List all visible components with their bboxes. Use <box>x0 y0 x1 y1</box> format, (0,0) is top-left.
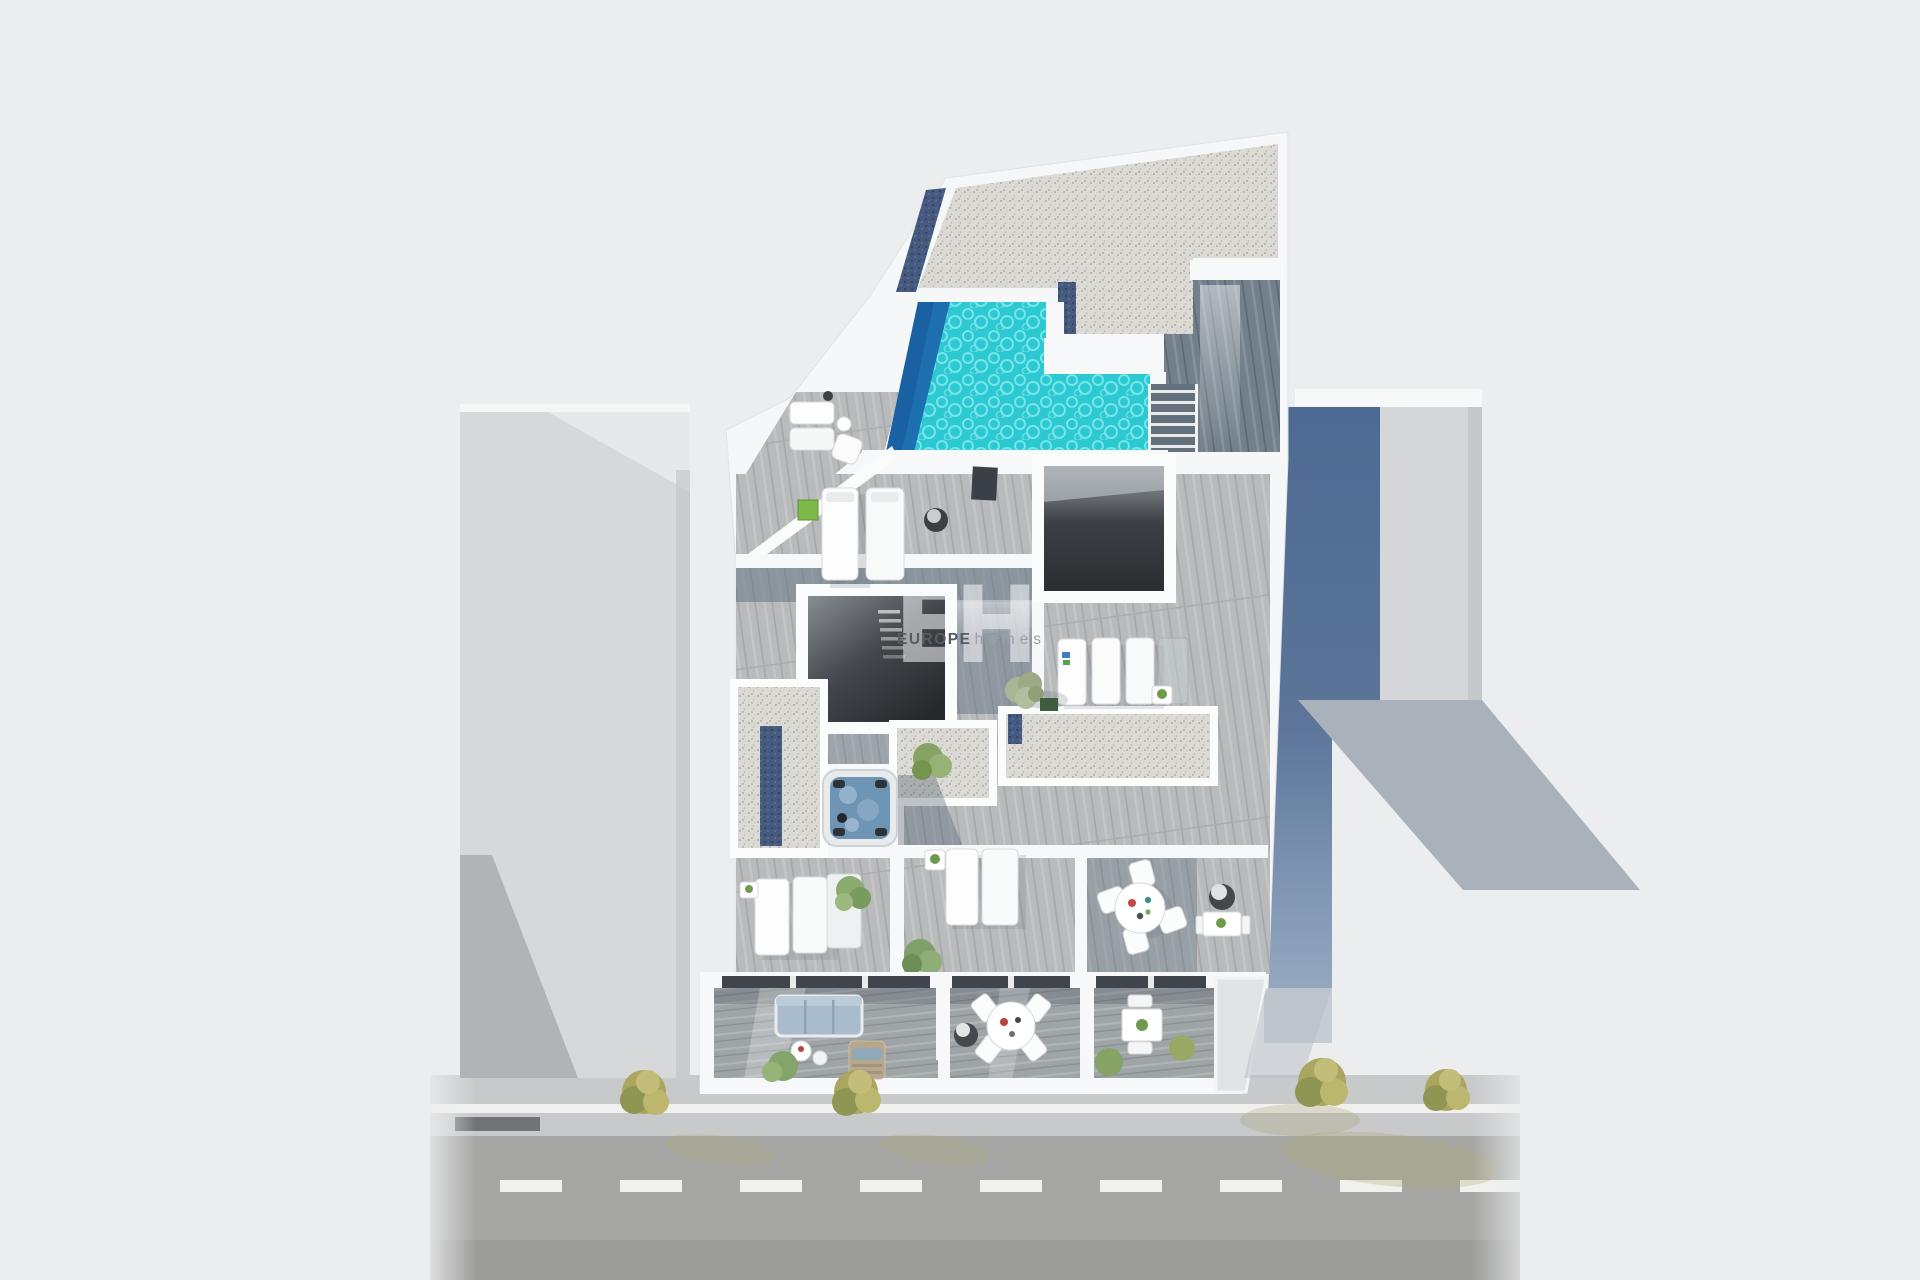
plant <box>835 893 853 911</box>
chair-cushion <box>852 1048 882 1060</box>
plant <box>930 854 940 864</box>
towel <box>1063 660 1070 665</box>
plant <box>745 885 753 893</box>
stairs-base <box>1150 384 1196 452</box>
street-zone <box>430 1075 1520 1280</box>
planter <box>823 391 833 401</box>
right-building-ground-shadow <box>1298 700 1640 890</box>
stairs-east <box>1148 384 1198 452</box>
sun-lounger <box>1126 638 1154 704</box>
garden-mat <box>1040 698 1058 711</box>
towel <box>1062 652 1070 658</box>
gravel-terrace-west <box>730 679 828 858</box>
round-table <box>987 1002 1035 1050</box>
shrub <box>762 1062 782 1082</box>
dining-table <box>1115 883 1165 933</box>
sun-lounger <box>755 879 789 955</box>
glass-door-opening <box>722 976 930 988</box>
balcony-divider <box>936 988 950 1060</box>
right-roof-parapet <box>1295 389 1482 407</box>
sun-lounger <box>793 877 827 953</box>
plant <box>1157 689 1167 699</box>
solar-strip-icon <box>1008 714 1022 744</box>
center-lounger-row <box>1058 638 1188 709</box>
stairwell-void-upper <box>1032 454 1176 603</box>
left-building-edge-shade <box>676 470 690 1078</box>
right-building-edge-shade <box>1468 407 1482 700</box>
dark-curb <box>455 1117 540 1131</box>
planter-plant <box>927 509 941 523</box>
solar-strip-icon <box>760 726 782 846</box>
neighbor-building-left <box>460 404 690 1078</box>
chair <box>1128 995 1152 1007</box>
outdoor-panel <box>971 466 998 500</box>
plant <box>1136 1019 1148 1031</box>
floorplan-render <box>0 0 1920 1280</box>
balcony-row <box>700 972 1266 1094</box>
render-canvas: EH EUROPEhomes <box>0 0 1920 1280</box>
sun-lounger <box>946 849 978 925</box>
chair <box>1128 1042 1152 1054</box>
pool-walkway-arm <box>1044 338 1164 374</box>
walkway-light-streak <box>1200 285 1240 450</box>
void-dark-opening <box>808 596 945 722</box>
sun-lounger <box>982 849 1018 925</box>
gravel-terrace-mid-right <box>998 706 1218 786</box>
plant <box>1216 918 1226 928</box>
chair <box>1242 916 1250 934</box>
sun-lounger <box>790 428 834 450</box>
balcony-divider <box>1080 988 1094 1054</box>
sidewalk-edge-line <box>430 1104 1520 1113</box>
main-building <box>700 132 1332 1094</box>
dining-terrace-wall <box>1075 848 1087 984</box>
sun-lounger <box>790 402 834 424</box>
right-building-body <box>1380 407 1482 700</box>
terrace-parapet <box>1190 260 1284 280</box>
pool-divider-wall <box>1046 302 1064 344</box>
deck-streak <box>946 600 1042 640</box>
shrub <box>1095 1048 1123 1076</box>
left-terrace-furniture <box>740 874 871 960</box>
tree-shadow <box>1240 1104 1360 1136</box>
side-table <box>837 417 851 431</box>
jacuzzi-seat <box>837 813 847 823</box>
road-lower-shade <box>430 1240 1520 1280</box>
green-planter <box>798 500 818 520</box>
shrub <box>902 954 922 974</box>
balcony-left-wall <box>700 978 714 1092</box>
neighbor-building-right <box>1264 389 1640 1043</box>
sun-lounger <box>1092 638 1120 704</box>
coffee-table <box>813 1051 827 1065</box>
planter-plant <box>1211 884 1227 900</box>
shrub <box>1169 1035 1195 1061</box>
